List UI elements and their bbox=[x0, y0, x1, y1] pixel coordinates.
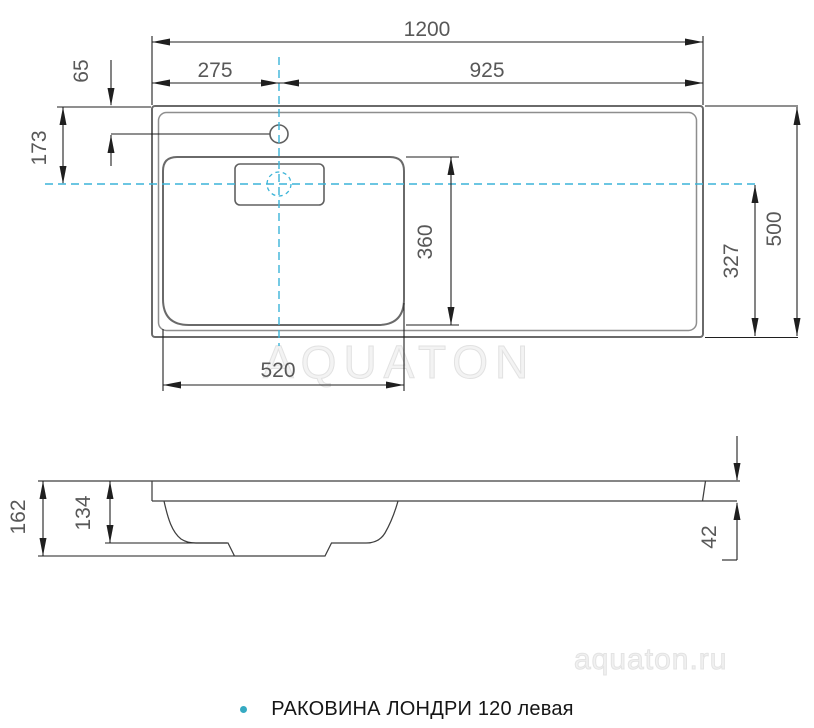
countertop-inner-edge bbox=[159, 113, 697, 331]
dim-basin-depth-label: 360 bbox=[414, 224, 437, 259]
dim-axis-from-front: 173 bbox=[28, 107, 67, 184]
dim-overall-depth: 500 bbox=[705, 106, 801, 338]
dim-overall-width-label: 1200 bbox=[404, 18, 451, 41]
dim-overall-depth-label: 500 bbox=[763, 211, 786, 246]
dim-overall-width: 1200 bbox=[152, 18, 703, 105]
dim-faucet-from-left-label: 275 bbox=[197, 59, 232, 82]
dim-basin-width-label: 520 bbox=[260, 359, 295, 382]
dim-axis-to-back: 327 bbox=[720, 185, 759, 336]
dim-overall-height: 162 bbox=[7, 481, 47, 556]
caption-row: РАКОВИНА ЛОНДРИ 120 левая bbox=[0, 698, 814, 721]
dim-edge-thickness: 42 bbox=[698, 436, 741, 560]
product-caption: РАКОВИНА ЛОНДРИ 120 левая bbox=[271, 698, 573, 721]
bowl-profile bbox=[164, 501, 398, 556]
dim-bowl-height-label: 134 bbox=[72, 495, 95, 530]
technical-drawing: 1200 275 925 65 173 bbox=[0, 0, 814, 728]
dim-axis-to-back-label: 327 bbox=[720, 243, 743, 278]
side-view: 162 134 42 bbox=[7, 436, 741, 560]
dim-axis-from-front-label: 173 bbox=[28, 130, 51, 165]
dim-faucet-position: 275 925 bbox=[152, 59, 703, 87]
dim-basin-width: 520 bbox=[163, 303, 404, 391]
worktop-right-edge bbox=[703, 481, 706, 501]
dim-faucet-to-right-label: 925 bbox=[469, 59, 504, 82]
basin-outline bbox=[163, 157, 404, 325]
dim-edge-thickness-label: 42 bbox=[698, 525, 721, 548]
plan-view: 1200 275 925 65 173 bbox=[28, 18, 801, 391]
caption-bullet-icon bbox=[240, 706, 247, 713]
drawing-page: { "page": { "caption": { "text": "РАКОВИ… bbox=[0, 0, 814, 728]
dim-bowl-height: 134 bbox=[72, 481, 114, 543]
countertop-outer-edge bbox=[152, 106, 703, 337]
dim-overall-height-label: 162 bbox=[7, 499, 30, 534]
dim-basin-depth: 360 bbox=[406, 157, 459, 325]
dim-faucet-from-edge-label: 65 bbox=[70, 59, 93, 82]
